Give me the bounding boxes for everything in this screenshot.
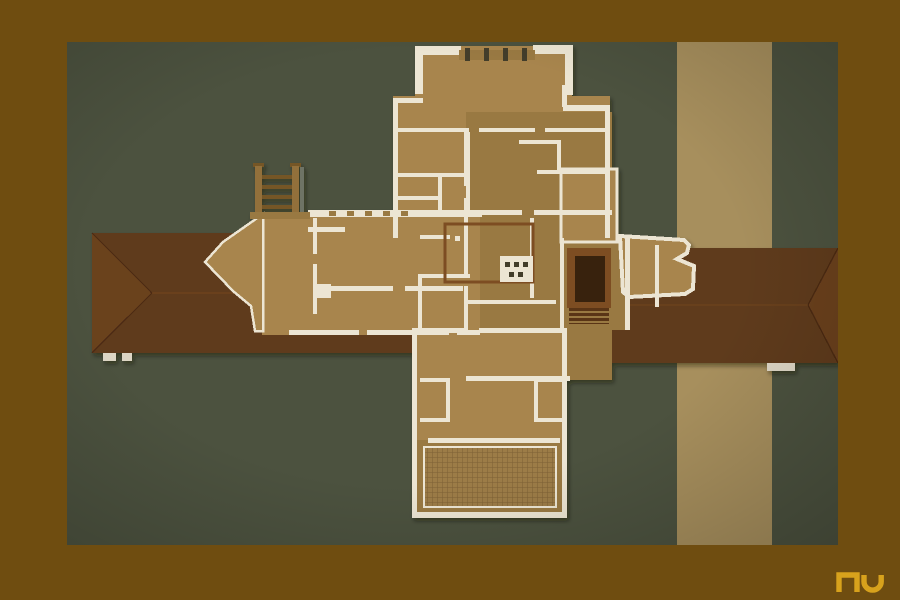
watermark-logo-icon — [835, 569, 889, 593]
stair-hall — [567, 248, 611, 324]
architectural-model-graphic — [67, 42, 838, 545]
model-photo — [67, 42, 838, 545]
terrace-trellis-grid — [424, 447, 556, 507]
framed-photograph: { "scene": { "description": "Overhead ph… — [0, 0, 900, 600]
bottom-wing-floor — [412, 328, 567, 445]
pergola-trellis — [250, 163, 310, 219]
